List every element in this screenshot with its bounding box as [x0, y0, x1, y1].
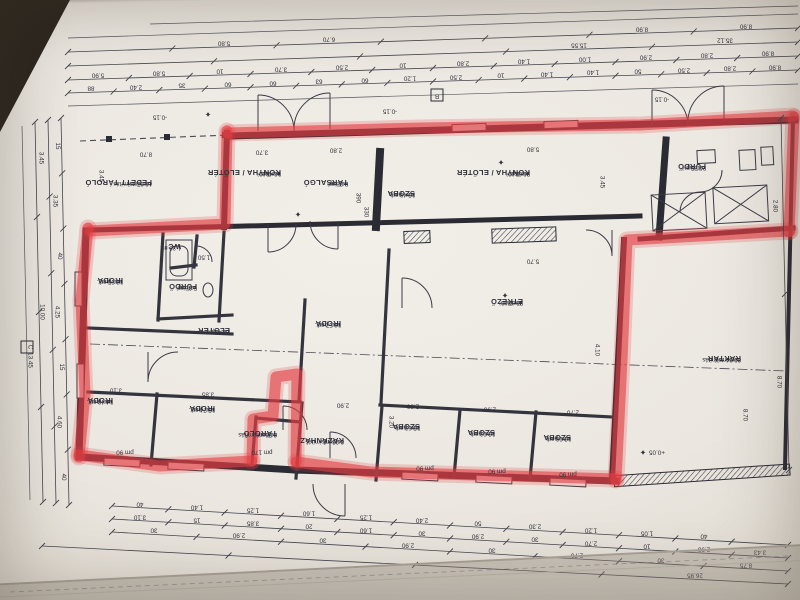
- axis-lines: [10, 135, 790, 592]
- partitions: [88, 232, 612, 480]
- floor-plan-drawing: [0, 0, 800, 600]
- walls: [79, 118, 795, 481]
- dimension-chain-lines: [32, 25, 800, 587]
- construction-lines: [22, 6, 798, 500]
- floor-plan-photo: 15.5535.125.806.708.908.905.905.80103.70…: [0, 0, 800, 600]
- hatched-wall-raktar: [614, 464, 790, 487]
- red-highlight: [79, 116, 794, 480]
